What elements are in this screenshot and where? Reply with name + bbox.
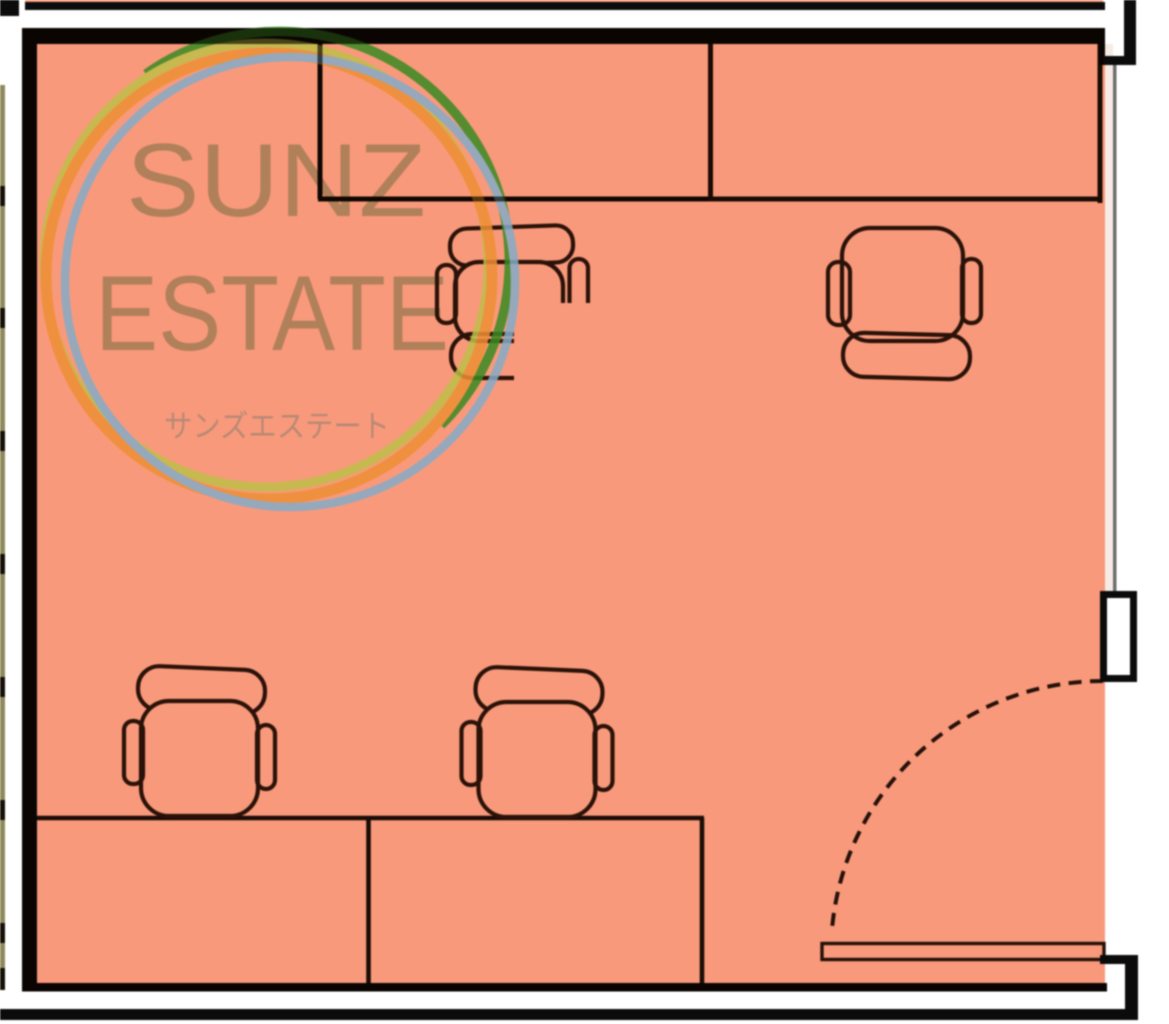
svg-text:ESTATE: ESTATE [95, 253, 449, 373]
svg-text:サンズエステート: サンズエステート [164, 409, 390, 444]
svg-text:SUNZ: SUNZ [126, 123, 426, 239]
